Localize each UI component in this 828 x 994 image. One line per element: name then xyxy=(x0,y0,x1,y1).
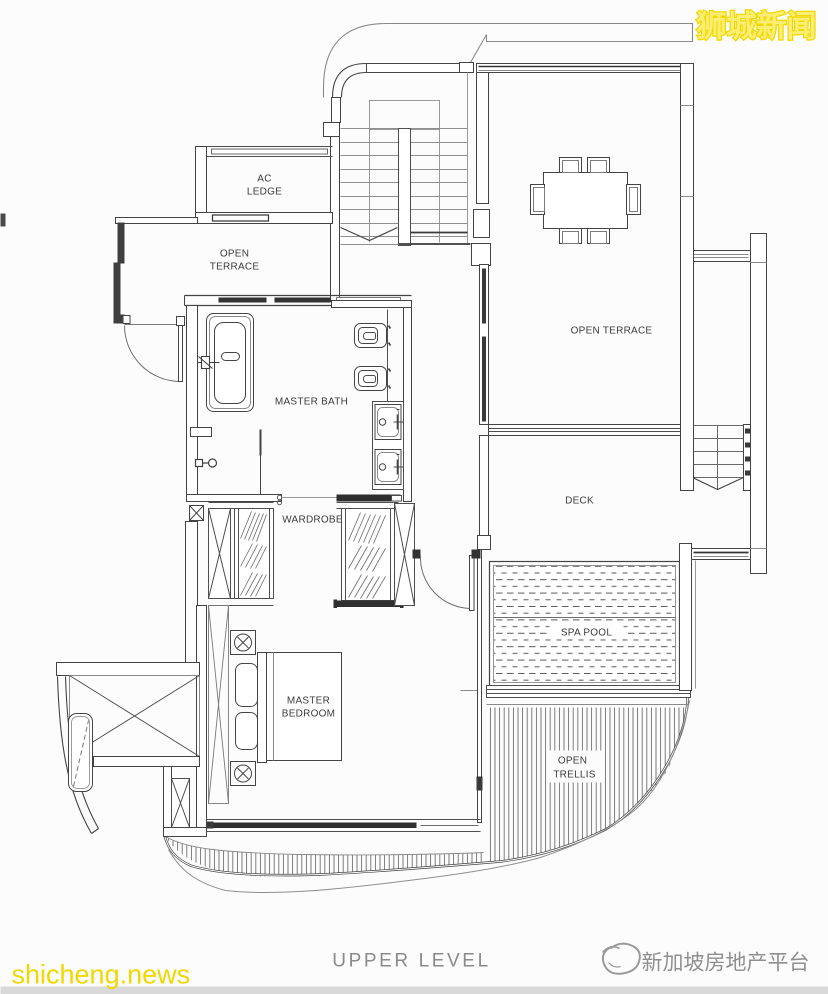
svg-text:OPEN: OPEN xyxy=(220,249,249,260)
svg-text:UPPER LEVEL: UPPER LEVEL xyxy=(332,951,491,972)
svg-text:shicheng.news: shicheng.news xyxy=(12,960,191,990)
svg-text:LEDGE: LEDGE xyxy=(247,187,282,198)
svg-text:WARDROBE: WARDROBE xyxy=(282,515,343,526)
svg-text:MASTER: MASTER xyxy=(287,696,330,707)
svg-text:狮城新闻: 狮城新闻 xyxy=(697,11,817,44)
svg-text:AC: AC xyxy=(257,174,271,185)
svg-text:TERRACE: TERRACE xyxy=(210,262,260,273)
svg-text:OPEN: OPEN xyxy=(558,756,587,767)
svg-text:新加坡房地产平台: 新加坡房地产平台 xyxy=(642,952,810,975)
svg-text:OPEN TERRACE: OPEN TERRACE xyxy=(571,326,653,337)
svg-text:BEDROOM: BEDROOM xyxy=(282,709,335,720)
svg-text:SPA POOL: SPA POOL xyxy=(561,628,612,639)
svg-text:DECK: DECK xyxy=(565,496,594,507)
svg-text:MASTER BATH: MASTER BATH xyxy=(275,397,348,408)
svg-text:TRELLIS: TRELLIS xyxy=(553,770,595,781)
